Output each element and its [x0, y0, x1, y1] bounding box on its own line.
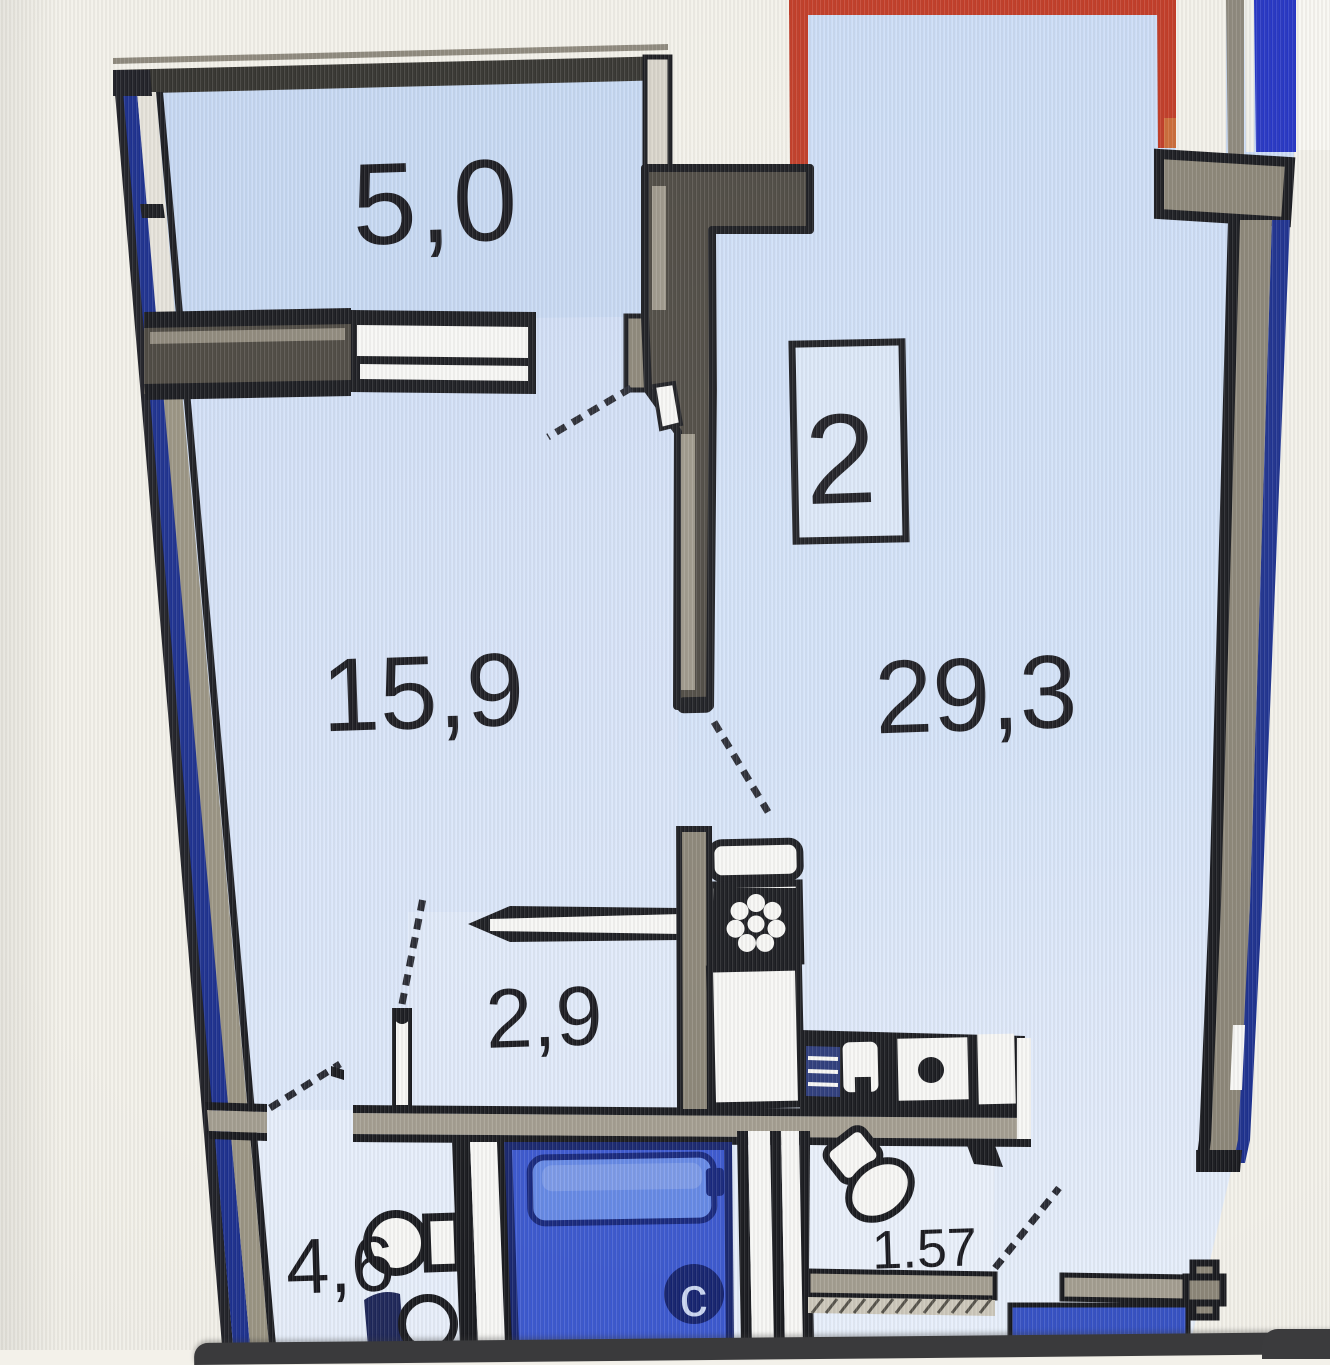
svg-text:2: 2	[803, 387, 879, 532]
svg-text:5,0: 5,0	[350, 134, 521, 269]
svg-text:29,3: 29,3	[873, 634, 1079, 757]
svg-text:4,6: 4,6	[284, 1219, 395, 1311]
svg-text:15,9: 15,9	[320, 632, 526, 755]
svg-text:2,9: 2,9	[484, 968, 604, 1066]
svg-text:c: c	[678, 1265, 708, 1329]
svg-text:1.57: 1.57	[871, 1217, 978, 1280]
